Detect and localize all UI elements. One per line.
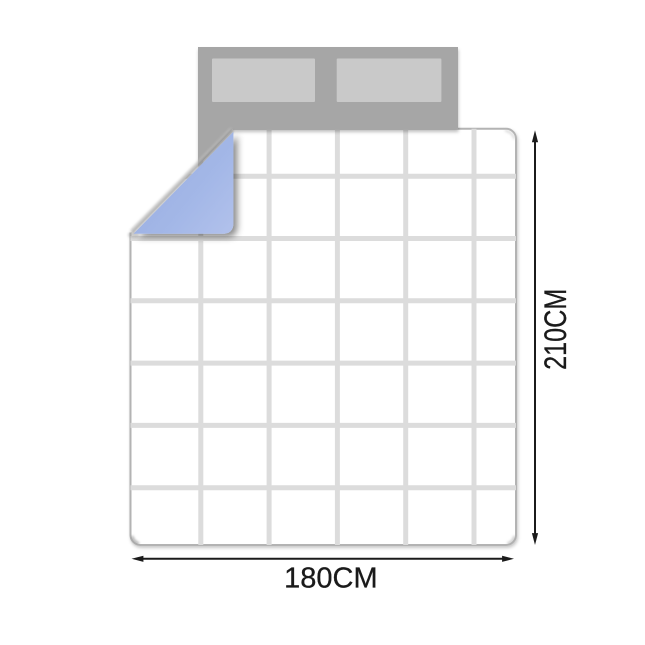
- svg-text:210CM: 210CM: [538, 289, 573, 370]
- svg-text:180CM: 180CM: [284, 562, 378, 594]
